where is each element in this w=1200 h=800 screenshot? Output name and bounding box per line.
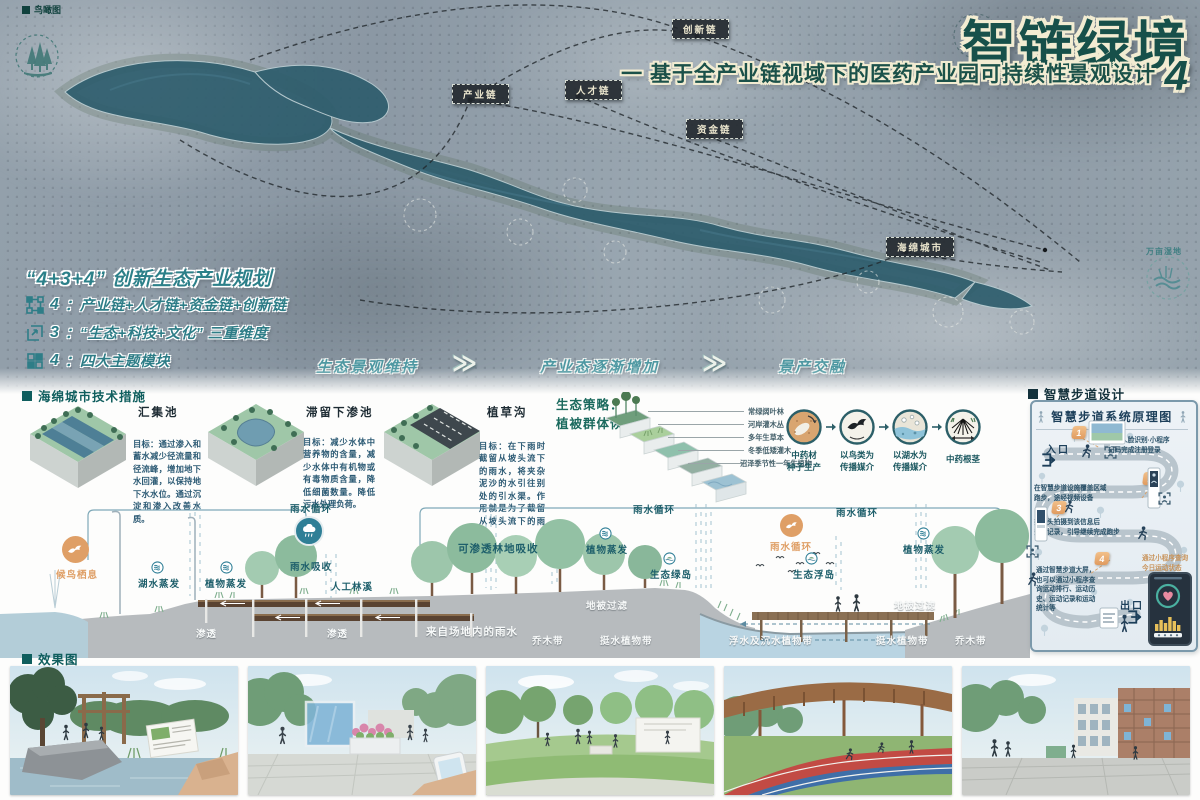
figure-icon (1036, 411, 1046, 423)
phase-2: 产业态逐渐增加 (540, 356, 659, 377)
phone-note: 通过小程序查询 今日运动状态 (1142, 554, 1194, 574)
step-text: 通过智慧步道大屏， 也可以通过小程序查 询运动排行、运动历 史、运动记录和运动 … (1036, 566, 1106, 614)
cycle-label: 中药根茎 (934, 454, 992, 466)
phone-screen-artwork (1150, 574, 1186, 640)
pine-trees-stamp-icon (14, 26, 60, 80)
masterplan-hero: 鸟瞰图 智链绿境 一 基于全产业链视域下的医药产业园可持续性景观设计 4 产业链… (0, 0, 1200, 394)
leader-line (678, 450, 744, 451)
planning-item-3: 4 ：四大主题模块 (26, 350, 170, 371)
entrance-door-icon (1040, 452, 1056, 468)
section-label: 雨水循环 (770, 539, 812, 553)
vegetation-layer-label: 多年生草本 (748, 433, 784, 443)
chain-label-industry: 产业链 (452, 84, 509, 104)
section-label: 雨水循环 (836, 505, 878, 519)
section-label: 湖水蒸发 (138, 576, 180, 590)
evaporation-icon (599, 527, 612, 540)
step-badge: 1 (1071, 426, 1087, 439)
render-artwork (962, 666, 1190, 795)
section-label: 可渗透林地吸收 (458, 541, 539, 556)
rain-cloud-icon (294, 516, 324, 546)
step-text: 在智慧步道设施覆盖区域 跑步，途经视频设备 (1034, 484, 1120, 503)
evaporation-icon (220, 561, 233, 574)
square-bullet-icon (22, 6, 30, 14)
section-label: 乔木带 (532, 633, 564, 647)
runner-icon (1136, 526, 1149, 541)
design-board: 鸟瞰图 智链绿境 一 基于全产业链视域下的医药产业园可持续性景观设计 4 产业链… (0, 0, 1200, 800)
square-bullet-icon (1028, 389, 1038, 399)
section-label: 地被过滤 (586, 598, 628, 612)
evaporation-icon (917, 527, 930, 540)
section-label: 乔木带 (955, 633, 987, 647)
render-artwork (724, 666, 952, 795)
section-label: 候鸟栖息 (56, 567, 98, 581)
chain-label-sponge-city: 海绵城市 (886, 237, 954, 257)
section-label: 人工林溪 (331, 579, 373, 593)
section-label: 挺水植物带 (600, 633, 653, 647)
section-label: 雨水循环 (290, 501, 332, 515)
chevron-icon: ≫ (452, 349, 477, 378)
dimension-icon (26, 324, 44, 342)
vegetation-terrace-diagram (598, 392, 748, 504)
arrow-icon (879, 423, 889, 431)
leader-line (668, 437, 744, 438)
runner-icon (1080, 444, 1093, 459)
cycle-label: 以湖水为 传播媒介 (881, 450, 939, 474)
section-label: 来自场地内的雨水 (426, 624, 518, 639)
square-bullet-icon (22, 391, 32, 401)
bird-habitat-icon (62, 536, 89, 563)
corner-header-label: 鸟瞰图 (34, 3, 61, 16)
technique-name: 汇集池 (138, 404, 179, 420)
grass-swale-illustration (380, 398, 484, 490)
runner-icon (1026, 572, 1039, 587)
phase-3: 景产交融 (778, 356, 846, 377)
eco-island-icon (663, 552, 676, 565)
eco-island-icon (805, 552, 818, 565)
section-label: 浮水及沉水植物带 (729, 633, 813, 647)
technique-name: 植草沟 (487, 404, 528, 420)
chain-label-capital: 资金链 (686, 119, 743, 139)
planning-item-1: 4 ：产业链+人才链+资金链+创新链 (26, 294, 287, 315)
bird-dispersal-icon (838, 408, 876, 446)
phase-1: 生态景观维持 (316, 356, 418, 377)
herb-seed-icon (785, 408, 823, 446)
render-artwork (486, 666, 714, 795)
leader-line (688, 463, 744, 464)
section-label: 挺水植物带 (876, 633, 929, 647)
page-number: 4 (1165, 52, 1188, 100)
render-park-lawn (486, 666, 714, 795)
arrow-icon (826, 423, 836, 431)
lake-dispersal-icon (891, 408, 929, 446)
runner-icon (1063, 500, 1075, 514)
rain-cycle-bird-icon (780, 514, 803, 537)
modules-icon (26, 352, 44, 370)
planning-title: “4+3+4” 创新生态产业规划 (26, 264, 272, 291)
section-label: 植物蒸发 (205, 576, 247, 590)
camera-kiosk-device (1146, 466, 1162, 512)
square-bullet-icon (22, 654, 32, 664)
wetland-label: 万亩湿地 (1146, 246, 1182, 257)
cycle-label: 以鸟类为 传播媒介 (828, 450, 886, 474)
face-scan-icon (1158, 492, 1171, 505)
render-campus-street (962, 666, 1190, 795)
render-artwork (248, 666, 476, 795)
network-icon (26, 296, 44, 314)
chevron-icon: ≫ (702, 349, 727, 378)
info-screen-device (1088, 420, 1126, 448)
render-smart-runway (724, 666, 952, 795)
face-scan-icon (1026, 545, 1039, 558)
leader-line (648, 411, 744, 412)
collection-pool-illustration (26, 400, 130, 492)
results-board (1098, 606, 1132, 636)
vegetation-layer-label: 常绿阔叶林 (748, 407, 784, 417)
corner-header: 鸟瞰图 (22, 3, 61, 16)
section-label: 渗透 (327, 626, 348, 640)
poster-subtitle: 一 基于全产业链视域下的医药产业园可持续性景观设计 (621, 58, 1156, 88)
section-label: 地被过滤 (894, 598, 936, 612)
section-label: 渗透 (196, 626, 217, 640)
evaporation-icon (151, 561, 164, 574)
vegetation-layer-label: 河岸灌木丛 (748, 420, 784, 430)
section-label: 雨水循环 (633, 502, 675, 516)
planning-item-2: 3 ：“生态+科技+文化” 三重维度 (26, 322, 268, 343)
step-badge: 4 (1094, 552, 1110, 565)
herb-root-icon (944, 408, 982, 446)
leader-line (658, 424, 744, 425)
section-label: 生态绿岛 (650, 567, 692, 581)
cycle-label: 中药材 种子生产 (775, 450, 833, 474)
chain-label-talent: 人才链 (565, 80, 622, 100)
face-scan-icon (1104, 446, 1117, 459)
technique-name: 滞留下渗池 (306, 404, 374, 420)
section-label: 雨水吸收 (290, 559, 332, 573)
kiosk-device (1034, 506, 1048, 544)
render-wetland-workshop (10, 666, 238, 795)
arrow-icon (932, 423, 942, 431)
section-label: 植物蒸发 (586, 542, 628, 556)
section-label: 生态浮岛 (793, 567, 835, 581)
render-plaza-planter (248, 666, 476, 795)
section-label: 植物蒸发 (903, 542, 945, 556)
chain-label-innovation: 创新链 (672, 19, 729, 39)
retention-pond-illustration (204, 398, 308, 490)
figure-icon (1178, 411, 1188, 423)
render-artwork (10, 666, 238, 795)
